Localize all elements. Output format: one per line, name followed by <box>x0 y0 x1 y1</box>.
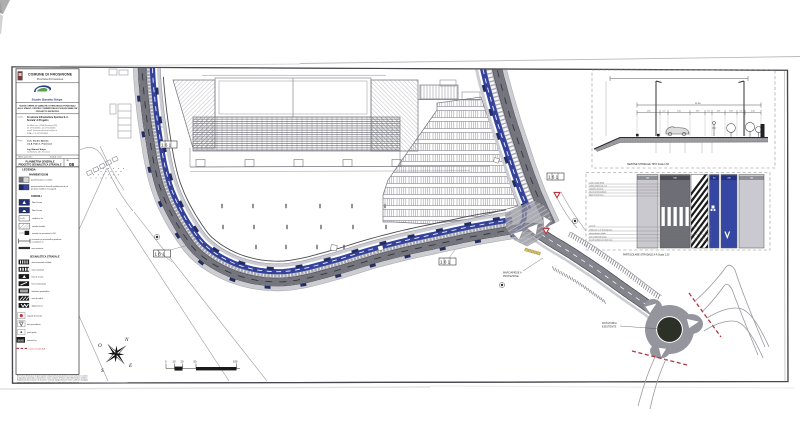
svg-text:PROTEZIONE: PROTEZIONE <box>503 275 519 278</box>
svg-text:CORDOLI: CORDOLI <box>31 196 42 198</box>
svg-text:PROGETTO SEGNALETICA STRADALE: PROGETTO SEGNALETICA STRADALE <box>18 163 61 166</box>
svg-text:ALLO STADIO, CENTRO COMMERCIAL: ALLO STADIO, CENTRO COMMERCIALE E NUOVA … <box>17 107 78 110</box>
svg-text:PAVIMENTAZIONI: PAVIMENTAZIONI <box>29 173 49 176</box>
svg-text:0.5: 0.5 <box>707 110 710 112</box>
svg-text:punto quota: punto quota <box>27 331 37 334</box>
svg-text:freccia direzionale: freccia direzionale <box>32 284 46 286</box>
svg-text:3.00: 3.00 <box>729 110 733 112</box>
svg-text:arch. Sandro Baratta: arch. Sandro Baratta <box>27 139 49 142</box>
svg-text:dare precedenza: dare precedenza <box>27 324 41 326</box>
svg-text:ROTATORIA: ROTATORIA <box>602 321 617 325</box>
svg-text:SEZIONE STRADALE TIPO Scala 1: SEZIONE STRADALE TIPO Scala 1:50 <box>627 163 670 166</box>
svg-text:COMUNE DI FROSINONE: COMUNE DI FROSINONE <box>28 73 73 77</box>
svg-text:tel. 0775.000000 - fax 0775.00: tel. 0775.000000 - fax 0775.000000 <box>27 127 55 130</box>
svg-text:linea di arresto: linea di arresto <box>32 276 44 279</box>
svg-text:strisce pedonali: strisce pedonali <box>32 268 45 271</box>
svg-text:N: N <box>124 337 129 343</box>
svg-text:Provincia di Frosinone: Provincia di Frosinone <box>37 77 64 81</box>
svg-text:Prog. :: Prog. : <box>18 139 24 142</box>
svg-text:pavimentazione in masselli aut: pavimentazione in masselli autobloccanti… <box>31 185 68 188</box>
svg-text:3.75: 3.75 <box>696 110 700 112</box>
svg-text:1.00: 1.00 <box>698 178 701 180</box>
svg-text:5.50: 5.50 <box>677 110 681 112</box>
svg-text:100: 100 <box>233 360 238 364</box>
svg-text:muro esistente: muro esistente <box>32 247 44 250</box>
svg-text:via A. Fabi 3 - Frosinone: via A. Fabi 3 - Frosinone <box>27 142 53 145</box>
svg-text:2.50: 2.50 <box>727 178 730 180</box>
svg-text:SCALA: 1:500: SCALA: 1:500 <box>50 156 61 159</box>
svg-text:1.50: 1.50 <box>647 110 651 112</box>
svg-text:doppia freccia: doppia freccia <box>32 305 43 307</box>
svg-text:DATA: aprile 2015: DATA: aprile 2015 <box>18 156 32 159</box>
svg-text:ESISTENTE: ESISTENTE <box>602 325 617 329</box>
svg-text:per pista ciclabile e marciapi: per pista ciclabile e marciapiedi <box>31 187 57 190</box>
svg-text:1.50: 1.50 <box>750 178 753 180</box>
svg-text:1 6 1: 1 6 1 <box>548 174 559 179</box>
svg-text:e-mail: frosinone.infrastruttu: e-mail: frosinone.infrastrutture@pec.it <box>27 129 57 132</box>
svg-text:sezione stradale A-A: sezione stradale A-A <box>29 347 46 350</box>
svg-text:pavimentazione in asfalto: pavimentazione in asfalto <box>31 179 52 182</box>
svg-text:Comm. :: Comm. : <box>18 116 26 118</box>
svg-text:O: O <box>98 343 102 349</box>
svg-text:0.5: 0.5 <box>663 110 666 112</box>
svg-text:SEGNALETICA STRADALE: SEGNALETICA STRADALE <box>30 255 60 258</box>
svg-text:via Marittima 140 - Frosinone: via Marittima 140 - Frosinone <box>27 151 50 154</box>
svg-text:su cordolo in cls: su cordolo in cls <box>32 241 44 244</box>
svg-text:Societa' di Progetto: Societa' di Progetto <box>27 119 49 122</box>
svg-text:segnale di pericolo: segnale di pericolo <box>27 316 42 318</box>
svg-text:0.5: 0.5 <box>740 110 743 112</box>
svg-text:h=15: h=15 <box>20 218 24 220</box>
svg-text:New Jersey: New Jersey <box>32 209 42 212</box>
svg-text:New Jersey: New Jersey <box>32 201 42 204</box>
svg-text:1 6 1: 1 6 1 <box>440 259 451 264</box>
svg-text:NUOVE OPERE DI VIABILITA' E PA: NUOVE OPERE DI VIABILITA' E PARCHEGGI FU… <box>19 104 76 107</box>
svg-text:fermata bus: fermata bus <box>27 339 37 342</box>
svg-text:4.00: 4.00 <box>751 110 755 112</box>
svg-text:3.25: 3.25 <box>717 110 721 112</box>
svg-text:attraversamento ciclabile: attraversamento ciclabile <box>32 261 52 264</box>
svg-text:PLANIMETRIA GENERALE: PLANIMETRIA GENERALE <box>25 160 54 163</box>
svg-text:P.IVA e C.F. 02710210602: P.IVA e C.F. 02710210602 <box>27 132 48 135</box>
svg-text:LEGENDA: LEGENDA <box>22 168 36 172</box>
svg-text:08: 08 <box>69 162 75 167</box>
svg-text:Frosinone Infrastrutture Sport: Frosinone Infrastrutture Sportive S.r.l. <box>27 116 69 119</box>
svg-text:ing. Manuel Stirpe: ing. Manuel Stirpe <box>27 148 47 151</box>
svg-text:BUS: BUS <box>18 338 24 342</box>
svg-text:isola di traffico: isola di traffico <box>32 297 43 300</box>
svg-text:PROGETTO DEFINITIVO: PROGETTO DEFINITIVO <box>36 111 60 113</box>
svg-text:Studio Baratta Stirpe: Studio Baratta Stirpe <box>32 98 63 102</box>
svg-text:muretto con recinzione h=150: muretto con recinzione h=150 <box>32 232 56 235</box>
svg-text:cordolo in cls: cordolo in cls <box>32 217 43 220</box>
svg-text:zanella stradale: zanella stradale <box>32 225 45 228</box>
svg-text:S: S <box>101 368 104 374</box>
svg-text:PARTICOLARE STRADALE A-A Scal: PARTICOLARE STRADALE A-A Scala 1:20 <box>623 253 670 256</box>
svg-text:1.50: 1.50 <box>646 178 649 180</box>
svg-text:5.50: 5.50 <box>673 178 676 180</box>
svg-text:cad. 1,00: cad. 1,00 <box>589 226 595 228</box>
svg-text:0.5: 0.5 <box>713 178 715 180</box>
svg-text:21.00: 21.00 <box>695 103 701 105</box>
svg-text:1 6 1: 1 6 1 <box>161 142 172 147</box>
svg-text:zebratura spartitraffico: zebratura spartitraffico <box>32 290 50 293</box>
